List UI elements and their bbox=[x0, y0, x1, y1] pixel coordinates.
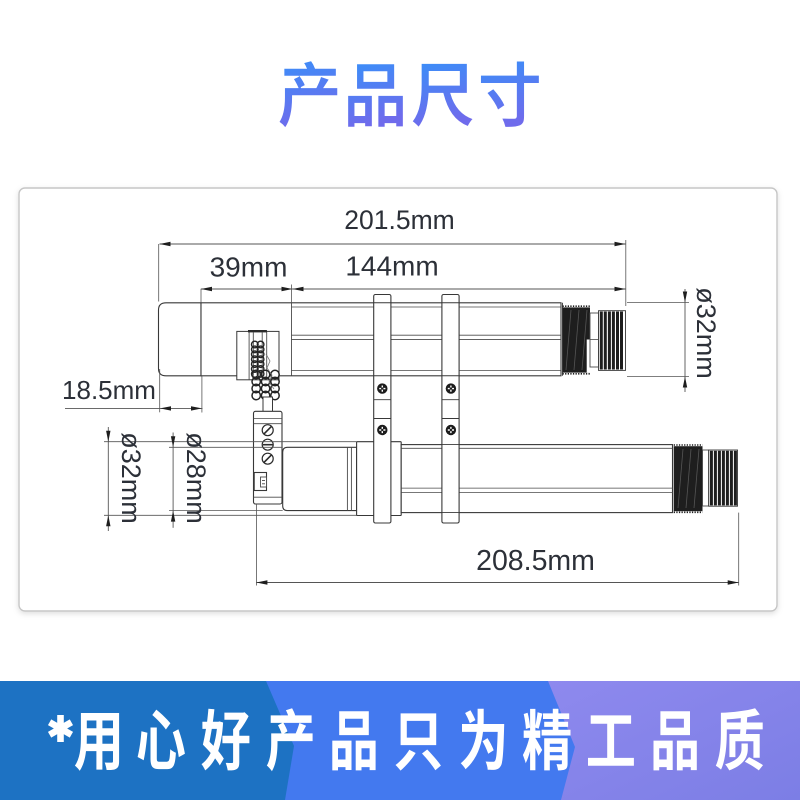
svg-text:ø32mm: ø32mm bbox=[116, 432, 146, 524]
svg-text:18.5mm: 18.5mm bbox=[62, 375, 156, 405]
svg-text:208.5mm: 208.5mm bbox=[476, 545, 595, 577]
svg-text:144mm: 144mm bbox=[345, 251, 438, 282]
svg-text:39mm: 39mm bbox=[210, 252, 288, 283]
svg-text:ø28mm: ø28mm bbox=[181, 432, 211, 524]
svg-text:ø32mm: ø32mm bbox=[691, 287, 721, 379]
svg-text:201.5mm: 201.5mm bbox=[344, 205, 454, 235]
